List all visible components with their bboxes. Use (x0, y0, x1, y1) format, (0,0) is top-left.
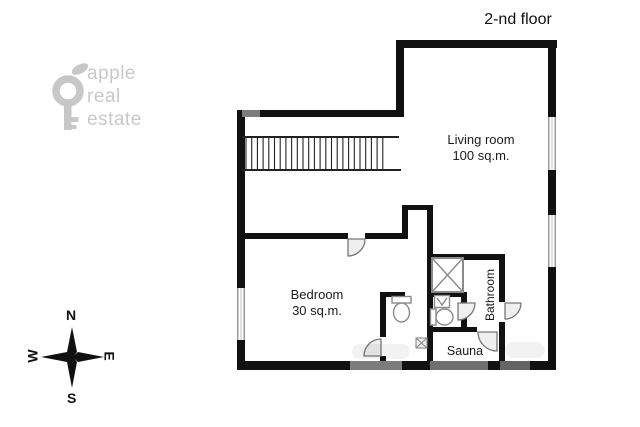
floor-plan-page: 2-nd floor apple real estate (0, 0, 640, 427)
stairs-icon (242, 137, 401, 170)
compass-east-label: E (102, 351, 118, 360)
window-right-upper (548, 117, 556, 170)
window-left (237, 288, 245, 340)
wall-top (396, 40, 557, 48)
agency-logo-text: apple real estate (87, 62, 142, 131)
toilet-icon-bathroom (431, 309, 454, 325)
stairs-treads (246, 138, 383, 170)
wall-upper-left (396, 40, 404, 117)
living-room-area: 100 sq.m. (421, 148, 541, 164)
wall-bedroom-north-a (237, 233, 348, 239)
bedroom-label: Bedroom 30 sq.m. (257, 287, 377, 319)
logo-word-1: apple (87, 62, 142, 85)
wall-partition-a (461, 292, 467, 305)
utility-box-icon (416, 338, 427, 348)
watermark-blob (505, 342, 545, 358)
wall-duct-left (402, 205, 408, 239)
door-arc-icon-bedroom (348, 239, 365, 256)
living-room-label: Living room 100 sq.m. (421, 132, 541, 164)
watermark-smudge (350, 361, 402, 370)
watermark-smudge (430, 361, 488, 370)
watermark-blob (352, 344, 410, 359)
wall-right (548, 40, 556, 370)
wall-bath-sauna (427, 327, 477, 332)
sink-icon (435, 296, 450, 308)
window-right-lower (548, 215, 556, 267)
bathroom-label: Bathroom (483, 264, 497, 326)
wall-shower-bottom (427, 292, 463, 297)
page-title: 2-nd floor (458, 11, 578, 29)
wall-bathroom-right-b (499, 322, 505, 361)
toilet-icon-wc (392, 297, 411, 323)
wall-wc-top (380, 292, 405, 297)
logo-word-3: estate (87, 108, 142, 131)
wall-wc-left-a (380, 292, 386, 337)
key-logo-icon (56, 61, 90, 130)
bedroom-area: 30 sq.m. (257, 303, 377, 319)
bedroom-name: Bedroom (291, 287, 344, 302)
shower-icon (432, 258, 463, 292)
wall-stairs-top (237, 110, 404, 117)
compass-rose-icon (41, 327, 104, 388)
door-arc-icon-bathroom-entry (505, 303, 521, 319)
wall-core (427, 205, 433, 361)
wall-bathroom-top (427, 254, 505, 260)
watermark-smudge (242, 110, 260, 117)
sauna-label: Sauna (435, 344, 495, 358)
living-room-name: Living room (447, 132, 514, 147)
compass-west-label: W (25, 349, 41, 362)
compass-north-label: N (66, 307, 76, 323)
watermark-smudge (500, 361, 530, 370)
logo-word-2: real (87, 85, 142, 108)
compass-south-label: S (67, 390, 76, 406)
wall-bathroom-right-a (499, 254, 505, 302)
